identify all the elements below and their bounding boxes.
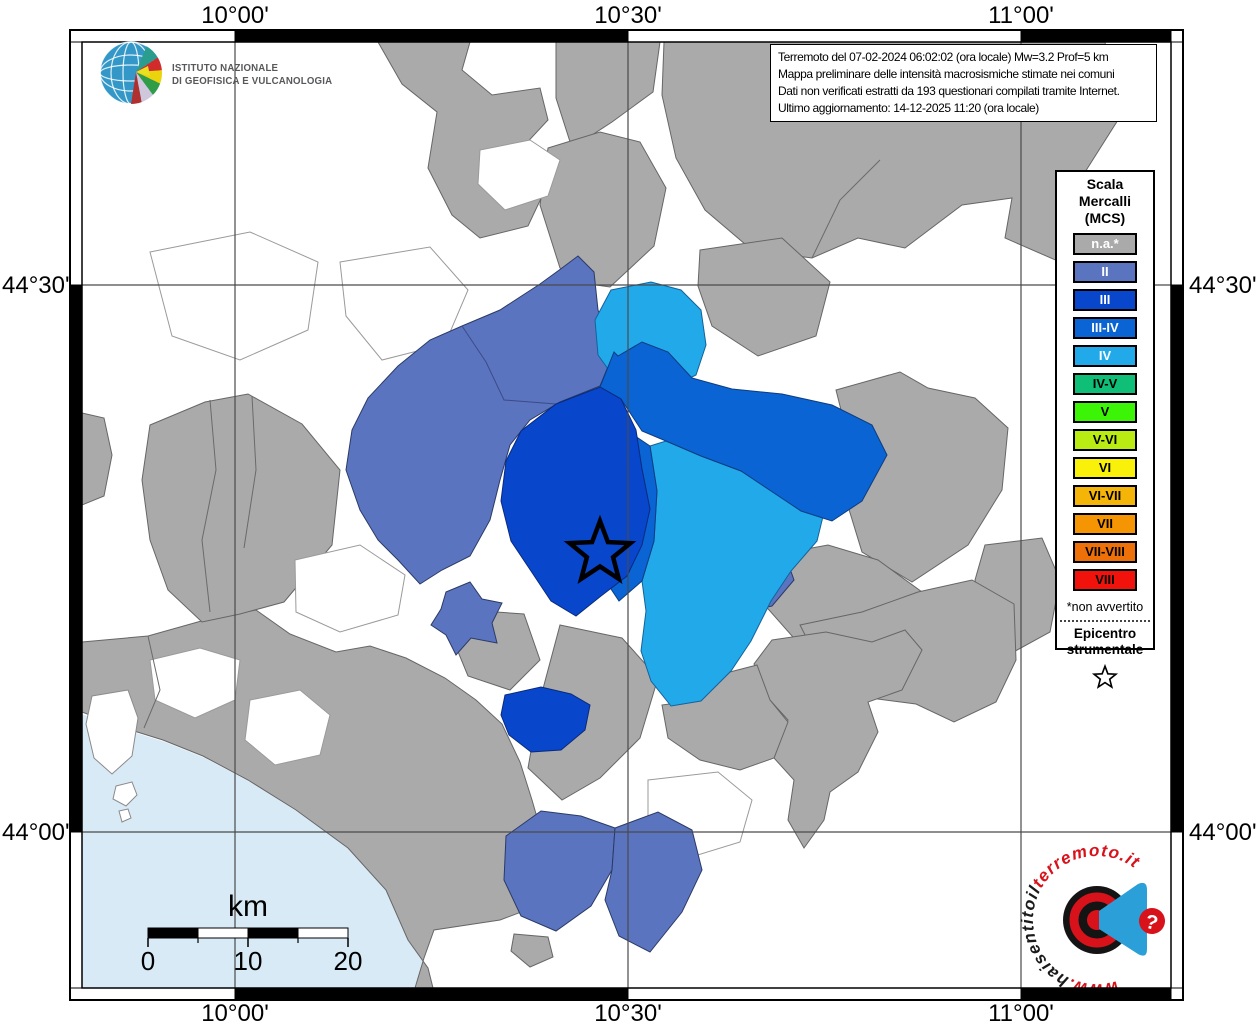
legend-epicenter-line2: strumentale <box>1057 642 1153 658</box>
legend-swatch-iv-v: IV-V <box>1073 373 1137 395</box>
legend-swatch-vi-vii: VI-VII <box>1073 485 1137 507</box>
legend-epicenter-title: Epicentro strumentale <box>1057 626 1153 658</box>
latitude-label-right-44-00: 44°00' <box>1189 819 1256 847</box>
legend-swatch-v: V <box>1073 401 1137 423</box>
legend-swatch-vii-viii: VII-VIII <box>1073 541 1137 563</box>
legend-swatch-na: n.a.* <box>1073 233 1137 255</box>
legend-swatch-viii: VIII <box>1073 569 1137 591</box>
longitude-label-top-10-00: 10°00' <box>201 2 269 30</box>
legend-title: Scala Mercalli (MCS) <box>1057 176 1153 227</box>
legend-epicenter-star-icon <box>1090 662 1120 692</box>
mercalli-legend: Scala Mercalli (MCS) n.a.* II III III-IV… <box>1055 170 1155 650</box>
ingv-logo-line1: ISTITUTO NAZIONALE <box>172 62 332 75</box>
scale-bar-tick-20: 20 <box>334 946 363 976</box>
longitude-label-top-10-30: 10°30' <box>594 2 662 30</box>
info-line-questionnaires: Dati non verificati estratti da 193 ques… <box>778 83 1149 100</box>
legend-swatch-iii: III <box>1073 289 1137 311</box>
info-line-updated: Ultimo aggiornamento: 14-12-2025 11:20 (… <box>778 100 1149 117</box>
legend-swatch-vi: VI <box>1073 457 1137 479</box>
legend-footnote: *non avvertito <box>1057 600 1153 614</box>
ingv-logo-line2: DI GEOFISICA E VULCANOLOGIA <box>172 75 332 88</box>
info-line-event: Terremoto del 07-02-2024 06:02:02 (ora l… <box>778 49 1149 66</box>
legend-title-line1: Scala <box>1057 176 1153 193</box>
legend-separator <box>1060 620 1150 622</box>
legend-swatch-iv: IV <box>1073 345 1137 367</box>
longitude-label-bottom-10-00: 10°00' <box>201 1000 269 1024</box>
scale-bar-unit: km <box>228 890 268 923</box>
legend-title-line2: Mercalli <box>1057 193 1153 210</box>
legend-swatch-ii: II <box>1073 261 1137 283</box>
legend-swatch-iii-iv: III-IV <box>1073 317 1137 339</box>
info-line-description: Mappa preliminare delle intensità macros… <box>778 66 1149 83</box>
longitude-label-top-11-00: 11°00' <box>988 2 1054 30</box>
longitude-label-bottom-10-30: 10°30' <box>594 1000 662 1024</box>
latitude-label-right-44-30: 44°30' <box>1189 272 1256 300</box>
map-content: km 0 10 20 ? www.haisentitoilterremoto.i… <box>82 42 1171 999</box>
legend-swatch-v-vi: V-VI <box>1073 429 1137 451</box>
scale-bar-tick-0: 0 <box>141 946 155 976</box>
ingv-logo: ISTITUTO NAZIONALE DI GEOFISICA E VULCAN… <box>98 40 518 110</box>
scale-bar-tick-10: 10 <box>234 946 263 976</box>
latitude-label-left-44-30: 44°30' <box>2 272 64 300</box>
legend-epicenter-line1: Epicentro <box>1057 626 1153 642</box>
latitude-label-left-44-00: 44°00' <box>2 819 64 847</box>
legend-title-line3: (MCS) <box>1057 210 1153 227</box>
ingv-globe-icon <box>98 40 166 108</box>
seismic-intensity-map-page: km 0 10 20 ? www.haisentitoilterremoto.i… <box>0 0 1256 1024</box>
legend-swatch-vii: VII <box>1073 513 1137 535</box>
ingv-logo-text: ISTITUTO NAZIONALE DI GEOFISICA E VULCAN… <box>172 62 332 88</box>
earthquake-info-box: Terremoto del 07-02-2024 06:02:02 (ora l… <box>770 44 1157 122</box>
longitude-label-bottom-11-00: 11°00' <box>988 1000 1054 1024</box>
